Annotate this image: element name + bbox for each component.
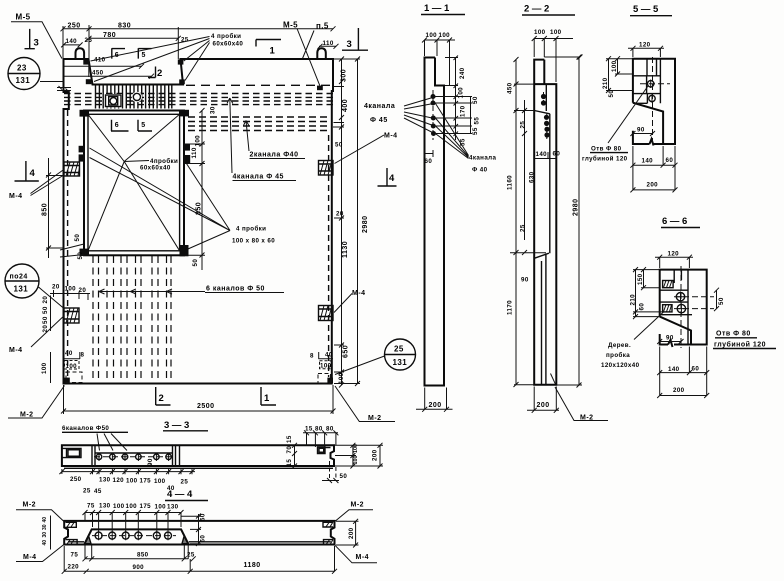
svg-text:200: 200 [372,449,379,461]
svg-text:пробка: пробка [606,352,630,359]
svg-text:25: 25 [394,345,404,354]
svg-text:1: 1 [270,46,276,57]
svg-text:900: 900 [133,564,145,571]
svg-text:50: 50 [192,259,199,267]
svg-text:1 — 1: 1 — 1 [424,3,450,14]
svg-text:40: 40 [65,350,73,357]
svg-text:М-4: М-4 [384,133,398,140]
svg-text:100: 100 [550,29,562,36]
svg-text:М-2: М-2 [368,415,382,422]
svg-text:2980: 2980 [573,198,580,216]
svg-text:6 — 6: 6 — 6 [662,216,687,227]
svg-text:80: 80 [326,426,334,433]
svg-text:50: 50 [335,142,343,149]
svg-text:4канала: 4канала [364,103,395,110]
svg-text:2: 2 [157,68,162,79]
svg-text:75: 75 [71,552,79,559]
svg-text:131: 131 [14,285,29,294]
svg-text:5 — 5: 5 — 5 [633,4,659,15]
svg-text:Отв Ф 80: Отв Ф 80 [716,331,751,338]
svg-text:15: 15 [286,459,293,467]
svg-text:300: 300 [341,69,348,82]
svg-text:100: 100 [126,478,138,485]
svg-text:110: 110 [191,147,198,158]
svg-text:1160: 1160 [507,175,514,190]
svg-text:200: 200 [537,402,550,409]
svg-text:60х60х40: 60х60х40 [213,40,244,47]
svg-text:6: 6 [115,122,119,129]
svg-text:400: 400 [342,99,349,112]
svg-text:25: 25 [83,488,91,495]
svg-text:60: 60 [425,158,433,165]
svg-text:6каналов Ф50: 6каналов Ф50 [62,425,109,432]
svg-text:М-2: М-2 [23,502,37,509]
svg-text:40: 40 [42,540,48,546]
svg-text:130: 130 [167,504,179,511]
svg-text:М-4: М-4 [23,554,37,561]
svg-text:100: 100 [195,135,202,147]
svg-text:100: 100 [66,363,78,370]
svg-text:150: 150 [637,273,644,285]
svg-text:100: 100 [65,286,77,293]
svg-text:250: 250 [70,476,82,483]
svg-text:140: 140 [536,151,548,158]
svg-text:по24: по24 [10,274,28,281]
svg-text:210: 210 [602,77,609,89]
svg-text:2 — 2: 2 — 2 [524,4,549,15]
svg-text:М-5: М-5 [283,21,298,30]
svg-text:4: 4 [30,168,36,179]
svg-text:23: 23 [17,64,27,73]
svg-text:1170: 1170 [507,300,514,315]
svg-text:60х60х40: 60х60х40 [140,165,171,172]
svg-text:140: 140 [668,366,680,373]
svg-text:25: 25 [520,224,527,232]
svg-text:25: 25 [181,479,189,486]
svg-text:4канала Ф 45: 4канала Ф 45 [233,174,284,181]
svg-text:50: 50 [718,297,725,305]
svg-text:8: 8 [310,353,314,360]
svg-text:90: 90 [637,127,645,134]
svg-text:100 х 80 х 60: 100 х 80 х 60 [232,238,275,245]
svg-text:20: 20 [336,211,344,218]
svg-text:130: 130 [99,503,111,510]
svg-text:30: 30 [42,532,48,538]
svg-text:100: 100 [320,363,332,370]
svg-text:4: 4 [389,173,395,184]
svg-text:15: 15 [286,435,293,443]
svg-text:20: 20 [42,296,49,304]
svg-text:6 каналов Ф 50: 6 каналов Ф 50 [206,286,265,293]
svg-text:75: 75 [87,503,95,510]
svg-text:830: 830 [118,23,131,30]
svg-text:40: 40 [42,517,48,523]
svg-text:М-2: М-2 [20,412,34,419]
svg-text:220: 220 [68,564,80,571]
svg-text:глубиной 120: глубиной 120 [582,156,628,163]
svg-text:3 — 3: 3 — 3 [164,420,189,431]
svg-text:М-4: М-4 [356,554,370,561]
svg-text:90: 90 [521,277,529,284]
svg-text:100: 100 [534,29,546,36]
svg-text:2980: 2980 [362,215,369,233]
svg-text:100: 100 [353,456,359,465]
svg-text:100: 100 [439,32,451,39]
svg-text:120: 120 [113,477,125,484]
svg-text:60: 60 [666,157,674,164]
svg-text:100: 100 [126,503,138,510]
svg-text:4 пробки: 4 пробки [236,226,266,233]
svg-text:15: 15 [305,426,313,433]
svg-text:210: 210 [630,294,637,306]
svg-text:глубиной 120: глубиной 120 [714,341,766,349]
svg-text:50: 50 [200,513,207,521]
svg-text:650: 650 [343,345,350,358]
svg-text:120: 120 [639,42,651,49]
svg-text:50: 50 [472,96,479,104]
svg-text:100: 100 [611,60,618,72]
svg-text:М-4: М-4 [9,193,23,200]
svg-text:25: 25 [187,552,195,559]
svg-text:50: 50 [608,90,615,98]
svg-text:4канала: 4канала [469,155,496,162]
svg-text:50: 50 [340,473,348,480]
svg-text:55: 55 [472,127,479,135]
svg-text:175: 175 [140,503,152,510]
svg-text:120х120х40: 120х120х40 [601,362,640,369]
svg-text:1130: 1130 [342,241,349,258]
svg-text:5: 5 [141,122,145,129]
svg-text:60: 60 [639,303,646,311]
svg-text:20: 20 [79,287,87,294]
svg-text:120: 120 [668,251,680,258]
svg-text:М-2: М-2 [351,502,365,509]
svg-text:450: 450 [92,70,104,77]
svg-text:140: 140 [642,158,654,165]
svg-text:55: 55 [474,117,481,125]
svg-text:850: 850 [137,552,149,559]
svg-text:100: 100 [155,504,167,511]
svg-text:200: 200 [348,527,355,539]
svg-text:Отв Ф 80: Отв Ф 80 [591,146,622,153]
svg-text:4 пробки: 4 пробки [211,33,241,40]
svg-text:50: 50 [42,306,49,314]
svg-text:90: 90 [666,335,674,342]
svg-text:3: 3 [347,39,352,50]
svg-text:45: 45 [94,488,102,495]
svg-text:140: 140 [66,38,78,45]
svg-text:3: 3 [34,38,39,49]
svg-text:200: 200 [429,402,442,409]
svg-text:М-4: М-4 [352,290,366,297]
svg-text:50: 50 [42,316,49,324]
svg-text:175: 175 [140,478,152,485]
svg-text:4 — 4: 4 — 4 [167,489,193,500]
svg-text:70: 70 [286,446,293,454]
svg-text:130: 130 [99,477,111,484]
svg-text:200: 200 [673,387,685,394]
svg-text:8: 8 [81,352,85,359]
svg-text:Ф 45: Ф 45 [370,117,388,124]
svg-text:М-4: М-4 [9,347,23,354]
svg-text:170: 170 [460,105,467,117]
svg-text:131: 131 [16,76,31,85]
svg-text:630: 630 [529,171,536,183]
svg-text:50: 50 [74,234,81,242]
svg-text:1: 1 [264,393,270,404]
svg-text:20: 20 [52,284,60,291]
svg-text:100: 100 [41,362,48,374]
svg-text:Ф 40: Ф 40 [472,167,488,174]
svg-text:100: 100 [458,87,465,99]
svg-text:200: 200 [647,182,659,189]
svg-text:5: 5 [142,52,146,59]
svg-text:М-5: М-5 [16,13,31,22]
svg-text:131: 131 [393,358,408,367]
svg-text:30: 30 [42,524,48,530]
svg-text:60: 60 [200,535,207,543]
svg-text:80: 80 [315,426,323,433]
svg-text:Дерев.: Дерев. [608,342,631,349]
svg-text:2канала Ф40: 2канала Ф40 [250,152,299,159]
svg-text:100: 100 [154,478,166,485]
svg-text:30: 30 [210,106,217,114]
svg-text:240: 240 [459,67,466,79]
svg-text:2: 2 [159,393,164,404]
svg-text:850: 850 [196,202,203,215]
svg-text:25: 25 [520,121,527,129]
svg-text:40: 40 [325,352,333,359]
svg-text:450: 450 [507,82,514,94]
svg-text:п.5: п.5 [316,22,329,31]
svg-text:2500: 2500 [197,403,215,410]
svg-text:90: 90 [147,458,154,466]
svg-text:250: 250 [68,22,81,29]
svg-text:1180: 1180 [244,562,261,569]
svg-text:780: 780 [103,32,116,39]
svg-text:60: 60 [692,366,700,373]
svg-text:25: 25 [85,37,93,44]
svg-text:850: 850 [42,203,49,216]
svg-text:100: 100 [113,503,125,510]
svg-text:100: 100 [338,372,345,384]
